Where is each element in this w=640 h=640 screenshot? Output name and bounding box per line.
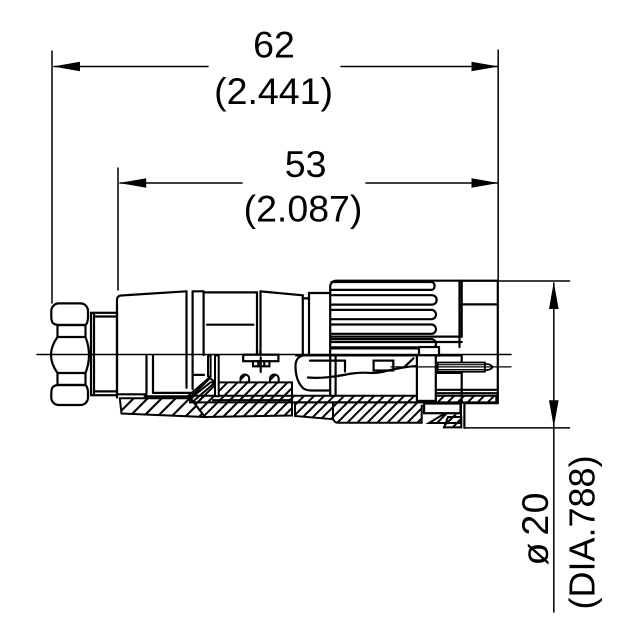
svg-text:(2.441): (2.441) — [214, 70, 333, 112]
svg-text:62: 62 — [253, 24, 295, 66]
svg-text:(2.087): (2.087) — [244, 188, 363, 230]
svg-text:(DIA.788): (DIA.788) — [562, 455, 603, 609]
svg-text:ø 20: ø 20 — [514, 491, 556, 565]
svg-text:53: 53 — [285, 143, 327, 185]
